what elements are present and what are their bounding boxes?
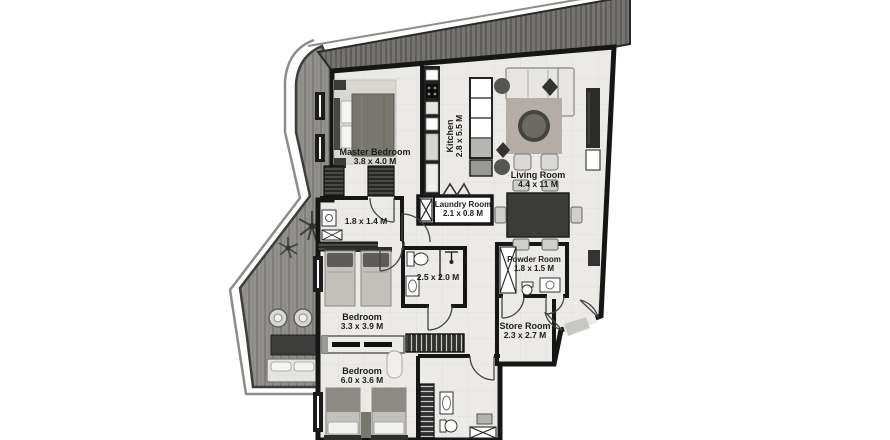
room-label-master-bedroom: Master Bedroom 3.8 x 4.0 M (339, 147, 410, 167)
sliding-wardrobe-icon (322, 336, 404, 353)
room-dims: 6.0 x 3.6 M (341, 376, 384, 386)
single-bed-icon (325, 251, 355, 306)
room-dims: 2.8 x 5.5 M (455, 115, 465, 158)
toilet-icon (407, 252, 428, 266)
single-bed-icon (361, 251, 391, 306)
room-label-store-room: Store Room 2.3 x 2.7 M (499, 321, 550, 341)
room-label-bathroom: 2.5 x 2.0 M (417, 273, 460, 283)
outdoor-table-icon (271, 335, 316, 355)
room-dims: 2.3 x 2.7 M (499, 331, 550, 341)
plant-icon (494, 78, 510, 94)
plant-icon (494, 159, 510, 175)
single-bed-icon (324, 388, 362, 440)
floorplan-drawing (0, 0, 890, 440)
wardrobe-icon (406, 334, 464, 352)
outdoor-chair-icon (294, 309, 312, 327)
wardrobe-icon (368, 166, 394, 196)
room-label-master-bathroom: 1.8 x 1.4 M (345, 217, 388, 227)
room-dims: 1.8 x 1.5 M (507, 265, 561, 274)
room-label-living-room: Living Room 4.4 x 11 M (511, 170, 566, 190)
single-bed-icon (370, 388, 408, 440)
sink-icon (440, 392, 453, 414)
sink-icon (426, 118, 438, 130)
outdoor-sofa-icon (267, 359, 318, 382)
room-label-laundry-room: Laundry Room 2.1 x 0.8 M (435, 201, 491, 219)
sink-icon (540, 278, 560, 292)
rug (361, 412, 371, 438)
chaise-icon (387, 351, 402, 378)
sink-icon (322, 210, 336, 226)
room-label-bedroom-3: Bedroom 6.0 x 3.6 M (341, 366, 384, 386)
round-coffee-table-icon (518, 110, 550, 142)
stove-icon (426, 84, 438, 98)
room-label-powder-room: Powder Room 1.8 x 1.5 M (507, 256, 561, 274)
shelf-unit-icon (420, 384, 434, 438)
storage-box-icon (470, 427, 496, 438)
kitchen-island-icon (470, 78, 492, 176)
room-dims: 3.8 x 4.0 M (339, 157, 410, 167)
floorplan-canvas: Master Bedroom 3.8 x 4.0 M Kitchen 2.8 x… (0, 0, 890, 440)
room-dims: 2.5 x 2.0 M (417, 273, 460, 283)
armchair-icon (541, 154, 558, 170)
armchair-icon (514, 154, 531, 170)
washing-machine-icon (420, 199, 432, 221)
toilet-icon (322, 230, 342, 240)
nightstand-icon (334, 80, 346, 90)
room-dims: 4.4 x 11 M (511, 180, 566, 190)
room-dims: 1.8 x 1.4 M (345, 217, 388, 227)
room-dims: 2.1 x 0.8 M (435, 210, 491, 219)
room-label-kitchen: Kitchen 2.8 x 5.5 M (445, 115, 465, 158)
toilet-icon (440, 420, 457, 432)
toilet-icon (522, 282, 533, 295)
room-dims: 3.3 x 3.9 M (341, 322, 384, 332)
table-icon (477, 414, 492, 424)
room-label-bedroom-2: Bedroom 3.3 x 3.9 M (341, 312, 384, 332)
wardrobe-icon (324, 166, 344, 196)
outdoor-chair-icon (269, 309, 287, 327)
dining-table-icon (507, 193, 569, 237)
